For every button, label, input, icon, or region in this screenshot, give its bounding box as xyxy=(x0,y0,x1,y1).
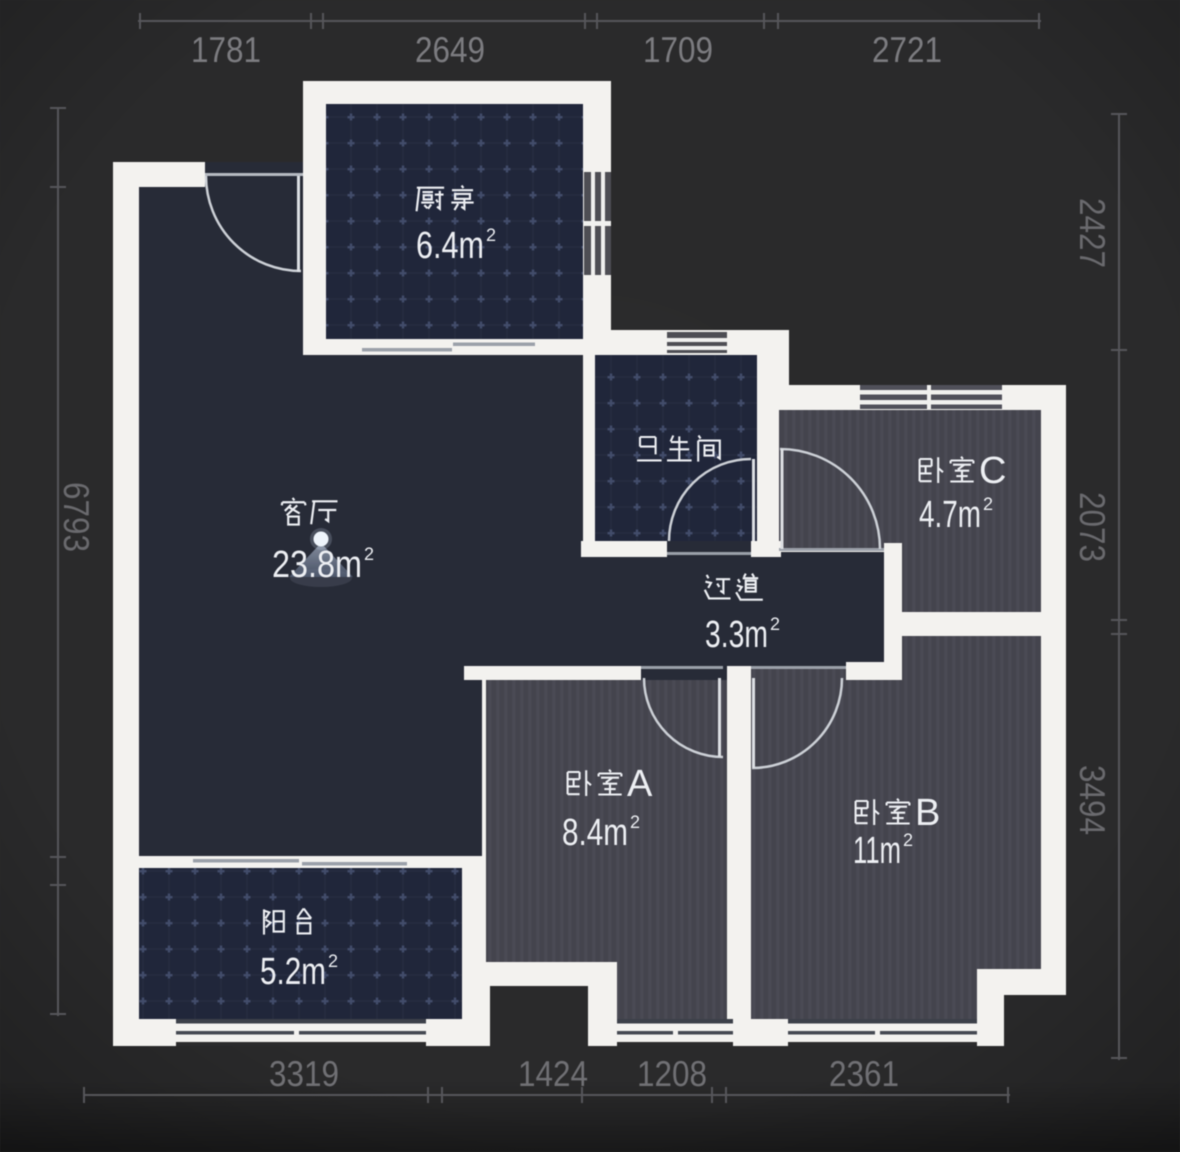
svg-text:1781: 1781 xyxy=(191,29,261,70)
svg-text:3.3m: 3.3m xyxy=(705,614,768,656)
svg-text:2: 2 xyxy=(630,812,640,832)
svg-text:5.2m: 5.2m xyxy=(260,951,326,993)
svg-text:1424: 1424 xyxy=(518,1053,588,1094)
svg-text:2073: 2073 xyxy=(1072,492,1113,562)
svg-text:2649: 2649 xyxy=(415,29,485,70)
svg-text:23.8m: 23.8m xyxy=(272,544,362,586)
svg-text:2: 2 xyxy=(486,225,496,245)
svg-text:4.7m: 4.7m xyxy=(919,494,981,536)
svg-text:2: 2 xyxy=(770,614,780,634)
svg-text:3319: 3319 xyxy=(269,1053,339,1094)
svg-text:2: 2 xyxy=(903,830,913,850)
svg-text:1709: 1709 xyxy=(643,29,713,70)
svg-text:8.4m: 8.4m xyxy=(562,812,628,854)
svg-text:3494: 3494 xyxy=(1072,765,1113,835)
svg-text:A: A xyxy=(627,763,653,805)
svg-text:2: 2 xyxy=(364,544,374,564)
svg-text:2: 2 xyxy=(983,494,993,514)
svg-text:1208: 1208 xyxy=(637,1053,707,1094)
svg-text:11m: 11m xyxy=(853,830,901,872)
svg-text:6.4m: 6.4m xyxy=(416,225,484,267)
svg-text:B: B xyxy=(915,792,940,834)
svg-text:6793: 6793 xyxy=(56,482,97,552)
svg-text:2427: 2427 xyxy=(1072,198,1113,268)
svg-text:2721: 2721 xyxy=(872,29,942,70)
svg-text:2: 2 xyxy=(328,951,338,971)
svg-text:2361: 2361 xyxy=(829,1053,899,1094)
svg-text:C: C xyxy=(979,450,1006,492)
